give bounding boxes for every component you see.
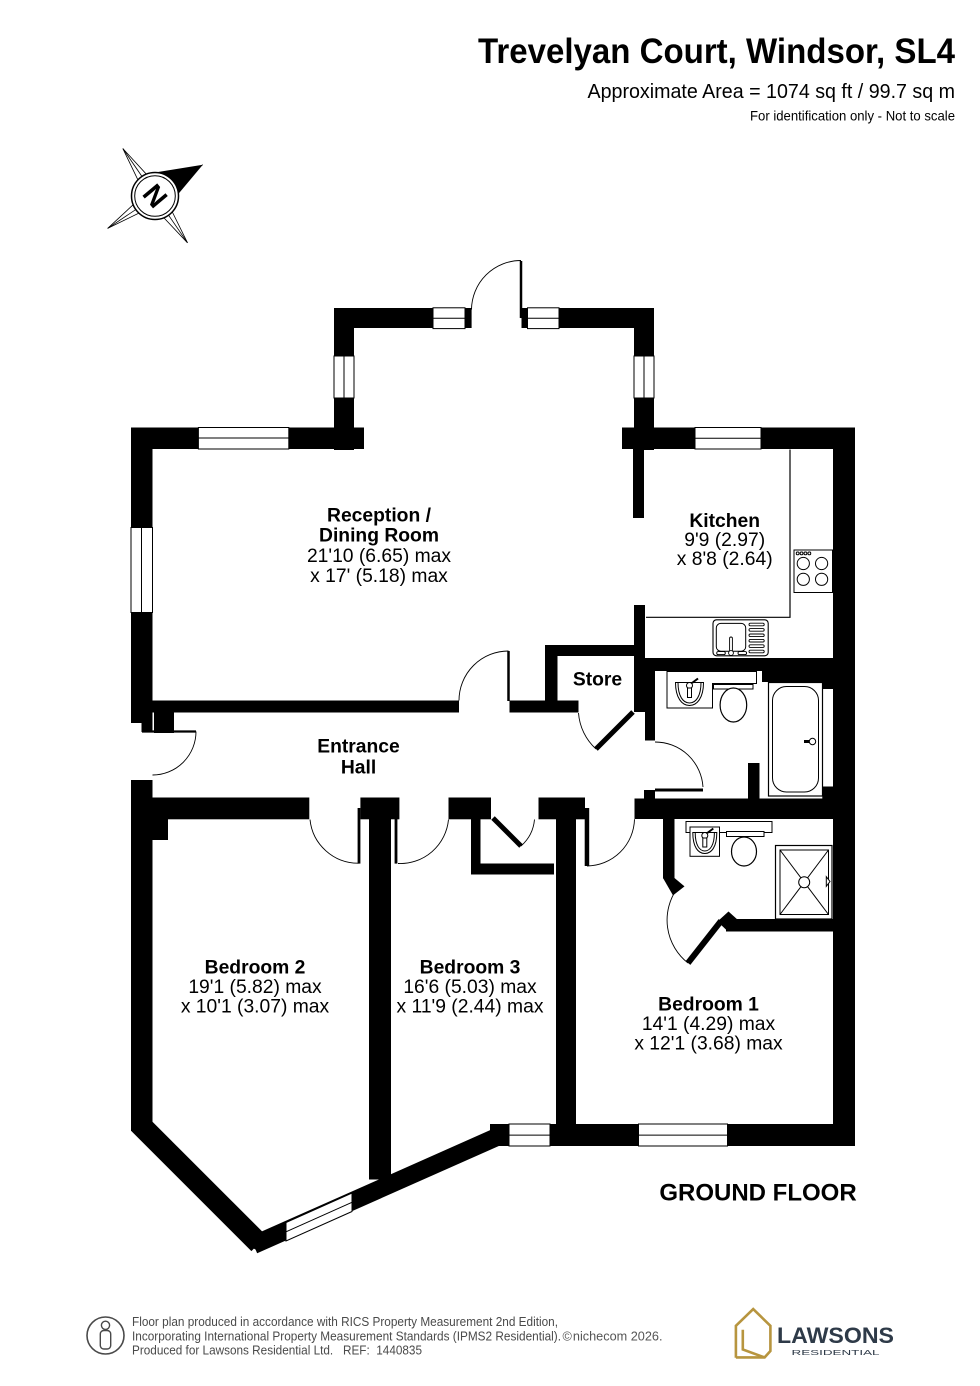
svg-text:Reception /: Reception /	[327, 506, 432, 527]
svg-text:GROUND FLOOR: GROUND FLOOR	[659, 1180, 856, 1207]
svg-text:19'1 (5.82) max: 19'1 (5.82) max	[188, 977, 322, 998]
svg-text:Entrance: Entrance	[317, 737, 400, 758]
svg-text:16'6 (5.03) max: 16'6 (5.03) max	[403, 977, 537, 998]
svg-text:Kitchen: Kitchen	[689, 511, 760, 532]
svg-text:Store: Store	[573, 670, 623, 691]
svg-text:Hall: Hall	[341, 758, 376, 779]
svg-text:Floor plan produced in accorda: Floor plan produced in accordance with R…	[132, 1314, 558, 1329]
svg-text:21'10 (6.65) max: 21'10 (6.65) max	[307, 546, 451, 567]
svg-text:Dining Room: Dining Room	[319, 526, 439, 547]
svg-text:x 17' (5.18) max: x 17' (5.18) max	[310, 566, 448, 587]
svg-text:Bedroom 1: Bedroom 1	[658, 995, 759, 1016]
svg-text:Produced for Lawsons Residenti: Produced for Lawsons Residential Ltd. RE…	[132, 1343, 422, 1358]
svg-text:Approximate Area = 1074 sq ft: Approximate Area = 1074 sq ft / 99.7 sq …	[588, 80, 956, 103]
svg-text:Bedroom 3: Bedroom 3	[420, 958, 521, 979]
svg-text:Trevelyan Court, Windsor, SL4: Trevelyan Court, Windsor, SL4	[478, 32, 955, 71]
svg-text:x 8'8 (2.64): x 8'8 (2.64)	[677, 549, 773, 570]
svg-text:9'9 (2.97): 9'9 (2.97)	[684, 530, 765, 551]
svg-text:14'1 (4.29) max: 14'1 (4.29) max	[642, 1014, 776, 1035]
svg-text:x 10'1 (3.07) max: x 10'1 (3.07) max	[181, 997, 330, 1018]
svg-text:© nichecom 2026.: © nichecom 2026.	[563, 1328, 663, 1343]
svg-text:x 11'9 (2.44) max: x 11'9 (2.44) max	[397, 997, 544, 1018]
svg-text:RESIDENTIAL: RESIDENTIAL	[792, 1350, 880, 1357]
svg-text:LAWSONS: LAWSONS	[777, 1323, 894, 1348]
svg-text:x 12'1 (3.68) max: x 12'1 (3.68) max	[634, 1034, 783, 1055]
svg-text:Incorporating International Pr: Incorporating International Property Mea…	[132, 1328, 561, 1343]
svg-text:Bedroom 2: Bedroom 2	[205, 958, 306, 979]
svg-text:For identification only - Not: For identification only - Not to scale	[750, 108, 955, 124]
